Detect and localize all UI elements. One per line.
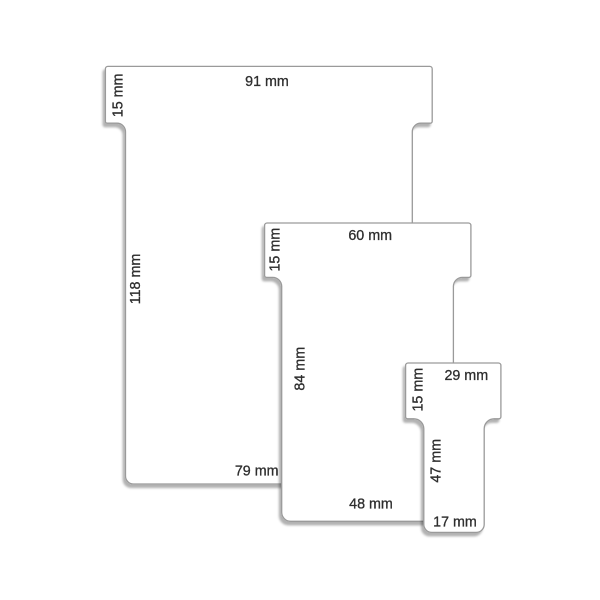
svg-text:17 mm: 17 mm <box>433 515 477 531</box>
svg-text:15 mm: 15 mm <box>411 368 427 412</box>
svg-text:15 mm: 15 mm <box>268 228 284 272</box>
svg-text:15 mm: 15 mm <box>111 74 127 118</box>
svg-text:47 mm: 47 mm <box>429 439 445 483</box>
svg-text:48 mm: 48 mm <box>349 496 393 512</box>
svg-text:79 mm: 79 mm <box>235 463 279 479</box>
svg-text:91 mm: 91 mm <box>245 74 289 90</box>
svg-text:84 mm: 84 mm <box>292 347 308 391</box>
svg-text:29 mm: 29 mm <box>444 368 488 384</box>
svg-text:118 mm: 118 mm <box>128 254 144 305</box>
svg-text:60 mm: 60 mm <box>348 228 392 244</box>
